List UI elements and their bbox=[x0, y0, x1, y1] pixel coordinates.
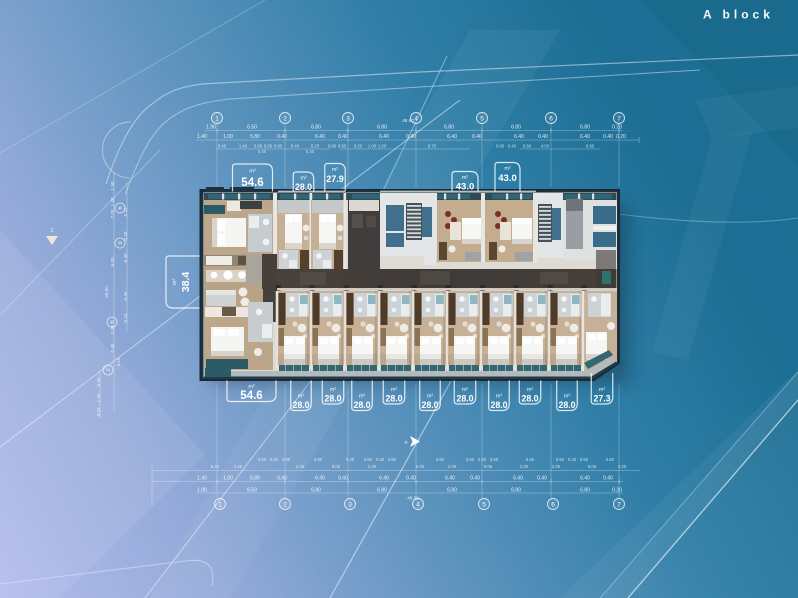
svg-text:6.80: 6.80 bbox=[311, 488, 321, 494]
svg-text:27.9: 27.9 bbox=[326, 174, 344, 184]
svg-text:0.40: 0.40 bbox=[338, 476, 348, 482]
svg-text:m²: m² bbox=[172, 279, 178, 285]
svg-text:1.40: 1.40 bbox=[197, 134, 207, 140]
svg-text:0.40: 0.40 bbox=[538, 134, 548, 140]
svg-text:6.40: 6.40 bbox=[514, 134, 524, 140]
svg-text:8.40: 8.40 bbox=[291, 144, 300, 149]
svg-text:6.80: 6.80 bbox=[311, 125, 321, 131]
svg-text:0.60: 0.60 bbox=[364, 457, 373, 462]
svg-text:6.40: 6.40 bbox=[447, 134, 457, 140]
svg-text:0.80: 0.80 bbox=[282, 457, 291, 462]
svg-text:54.6: 54.6 bbox=[241, 177, 263, 189]
svg-text:2.20: 2.20 bbox=[520, 464, 529, 469]
svg-text:0.80: 0.80 bbox=[274, 144, 283, 149]
svg-text:0.60: 0.60 bbox=[314, 457, 323, 462]
svg-text:54.6: 54.6 bbox=[240, 390, 262, 402]
svg-text:0.20: 0.20 bbox=[616, 134, 626, 140]
svg-text:4: 4 bbox=[414, 115, 418, 122]
svg-text:2.05: 2.05 bbox=[296, 464, 305, 469]
svg-text:20.60: 20.60 bbox=[104, 286, 109, 298]
svg-text:6.80: 6.80 bbox=[444, 125, 454, 131]
svg-text:m²: m² bbox=[427, 394, 433, 400]
svg-text:28.0: 28.0 bbox=[490, 400, 507, 410]
svg-text:1.90: 1.90 bbox=[110, 181, 115, 190]
svg-text:4.10: 4.10 bbox=[116, 357, 121, 366]
svg-text:m²: m² bbox=[527, 387, 533, 393]
svg-text:8.40: 8.40 bbox=[218, 144, 227, 149]
svg-text:6.40: 6.40 bbox=[513, 476, 523, 482]
svg-text:8.20: 8.20 bbox=[311, 144, 320, 149]
svg-text:m²: m² bbox=[298, 394, 304, 400]
svg-text:1.00: 1.00 bbox=[368, 144, 377, 149]
svg-text:4: 4 bbox=[416, 501, 420, 508]
svg-text:0.40: 0.40 bbox=[376, 457, 385, 462]
svg-text:6.80: 6.80 bbox=[447, 488, 457, 494]
svg-text:1.90: 1.90 bbox=[197, 488, 207, 494]
svg-text:1.00: 1.00 bbox=[223, 476, 233, 482]
svg-text:1.00: 1.00 bbox=[223, 134, 233, 140]
svg-text:28.0: 28.0 bbox=[295, 182, 312, 192]
svg-text:m²: m² bbox=[564, 394, 570, 400]
svg-text:1.00: 1.00 bbox=[96, 393, 101, 402]
svg-text:6.80: 6.80 bbox=[377, 125, 387, 131]
svg-text:2: 2 bbox=[51, 228, 54, 234]
svg-text:6.80: 6.80 bbox=[511, 125, 521, 131]
svg-text:1.40: 1.40 bbox=[110, 197, 115, 206]
svg-text:28.0: 28.0 bbox=[521, 394, 538, 404]
svg-text:8.05: 8.05 bbox=[332, 464, 341, 469]
svg-text:28.0: 28.0 bbox=[421, 400, 438, 410]
svg-text:43.0: 43.0 bbox=[456, 182, 475, 193]
svg-text:m²: m² bbox=[300, 176, 306, 182]
svg-text:m²: m² bbox=[249, 169, 255, 175]
svg-text:m²: m² bbox=[391, 387, 397, 393]
svg-text:1.40: 1.40 bbox=[234, 464, 243, 469]
svg-text:1: 1 bbox=[218, 501, 222, 508]
svg-text:0.40: 0.40 bbox=[338, 134, 348, 140]
svg-text:7: 7 bbox=[617, 501, 621, 508]
svg-text:n: n bbox=[404, 440, 407, 446]
svg-text:2.20: 2.20 bbox=[368, 464, 377, 469]
svg-text:5.80: 5.80 bbox=[250, 476, 260, 482]
svg-text:6.40: 6.40 bbox=[580, 476, 590, 482]
svg-text:0.40: 0.40 bbox=[603, 476, 613, 482]
svg-text:6: 6 bbox=[549, 115, 553, 122]
svg-text:0.40: 0.40 bbox=[508, 144, 517, 149]
svg-text:m²: m² bbox=[359, 394, 365, 400]
svg-text:0.20: 0.20 bbox=[612, 488, 622, 494]
svg-text:5.40: 5.40 bbox=[96, 377, 101, 386]
svg-text:1.40: 1.40 bbox=[197, 476, 207, 482]
svg-text:3: 3 bbox=[348, 501, 352, 508]
svg-text:5.80: 5.80 bbox=[250, 134, 260, 140]
svg-text:0.40: 0.40 bbox=[277, 134, 287, 140]
svg-text:7.00: 7.00 bbox=[110, 209, 115, 218]
svg-text:0.60: 0.60 bbox=[490, 457, 499, 462]
svg-text:9.70: 9.70 bbox=[428, 144, 437, 149]
svg-text:6.80: 6.80 bbox=[586, 144, 595, 149]
svg-text:43.0: 43.0 bbox=[498, 173, 517, 184]
svg-text:0.40: 0.40 bbox=[110, 343, 115, 352]
svg-text:0.40: 0.40 bbox=[406, 476, 416, 482]
svg-text:0.40: 0.40 bbox=[603, 134, 613, 140]
svg-text:0.40: 0.40 bbox=[258, 149, 267, 154]
svg-text:8.05: 8.05 bbox=[588, 464, 597, 469]
svg-text:1.00: 1.00 bbox=[378, 144, 387, 149]
svg-text:0.45: 0.45 bbox=[123, 291, 128, 300]
svg-text:6.00: 6.00 bbox=[110, 257, 115, 266]
svg-text:3: 3 bbox=[346, 115, 350, 122]
svg-text:6.40: 6.40 bbox=[123, 253, 128, 262]
svg-text:0.80: 0.80 bbox=[496, 144, 505, 149]
svg-text:m²: m² bbox=[332, 167, 338, 173]
svg-text:A block: A block bbox=[703, 8, 774, 22]
svg-text:0.60: 0.60 bbox=[258, 457, 267, 462]
svg-text:0.80: 0.80 bbox=[523, 144, 532, 149]
svg-text:6.80: 6.80 bbox=[580, 488, 590, 494]
svg-text:0.60: 0.60 bbox=[526, 457, 535, 462]
svg-text:6.40: 6.40 bbox=[379, 476, 389, 482]
svg-text:0.60: 0.60 bbox=[388, 457, 397, 462]
svg-text:m²: m² bbox=[462, 175, 468, 181]
svg-text:2.05: 2.05 bbox=[552, 464, 561, 469]
svg-text:0.20: 0.20 bbox=[612, 125, 622, 131]
svg-text:0.40: 0.40 bbox=[270, 457, 279, 462]
svg-text:6.80: 6.80 bbox=[377, 488, 387, 494]
svg-text:5: 5 bbox=[480, 115, 484, 122]
svg-text:0.60: 0.60 bbox=[556, 457, 565, 462]
svg-text:m²: m² bbox=[504, 166, 510, 172]
svg-text:2: 2 bbox=[283, 115, 287, 122]
svg-text:28.0: 28.0 bbox=[353, 400, 370, 410]
svg-text:0.40: 0.40 bbox=[306, 149, 315, 154]
svg-text:0.40: 0.40 bbox=[406, 134, 416, 140]
svg-text:0.40: 0.40 bbox=[277, 476, 287, 482]
svg-text:6.80: 6.80 bbox=[511, 488, 521, 494]
svg-text:8.20: 8.20 bbox=[354, 144, 363, 149]
svg-text:0.60: 0.60 bbox=[466, 457, 475, 462]
svg-text:0.80: 0.80 bbox=[264, 144, 273, 149]
svg-text:6.40: 6.40 bbox=[580, 134, 590, 140]
svg-text:4.00: 4.00 bbox=[541, 144, 550, 149]
svg-text:6.50: 6.50 bbox=[247, 125, 257, 131]
svg-text:0.40: 0.40 bbox=[568, 457, 577, 462]
svg-text:0.40: 0.40 bbox=[123, 231, 128, 240]
svg-text:6.50: 6.50 bbox=[247, 488, 257, 494]
svg-text:0.80: 0.80 bbox=[254, 144, 263, 149]
svg-text:8.05: 8.05 bbox=[484, 464, 493, 469]
svg-text:1.40: 1.40 bbox=[239, 144, 248, 149]
svg-text:28.0: 28.0 bbox=[385, 394, 402, 404]
svg-text:m²: m² bbox=[462, 387, 468, 393]
svg-text:0.60: 0.60 bbox=[580, 457, 589, 462]
svg-text:6.40: 6.40 bbox=[445, 476, 455, 482]
svg-text:6.40: 6.40 bbox=[315, 476, 325, 482]
svg-text:5.00: 5.00 bbox=[416, 464, 425, 469]
svg-text:0.60: 0.60 bbox=[606, 457, 615, 462]
svg-text:0.40: 0.40 bbox=[346, 457, 355, 462]
svg-text:m²: m² bbox=[330, 387, 336, 393]
svg-text:6.40: 6.40 bbox=[379, 134, 389, 140]
svg-text:0.40: 0.40 bbox=[537, 476, 547, 482]
svg-text:1: 1 bbox=[215, 115, 219, 122]
svg-text:0.40: 0.40 bbox=[470, 476, 480, 482]
svg-text:28.0: 28.0 bbox=[324, 394, 341, 404]
svg-text:0.80: 0.80 bbox=[338, 144, 347, 149]
svg-text:8.40: 8.40 bbox=[211, 464, 220, 469]
svg-text:28.0: 28.0 bbox=[292, 400, 309, 410]
svg-text:6.40: 6.40 bbox=[315, 134, 325, 140]
svg-text:28.0: 28.0 bbox=[456, 394, 473, 404]
svg-text:m²: m² bbox=[599, 387, 605, 393]
svg-text:4.10: 4.10 bbox=[96, 407, 101, 416]
svg-text:1.90: 1.90 bbox=[206, 125, 216, 131]
svg-text:2: 2 bbox=[283, 501, 287, 508]
svg-text:27.3: 27.3 bbox=[593, 394, 610, 404]
svg-text:6.80: 6.80 bbox=[580, 125, 590, 131]
svg-text:0.80: 0.80 bbox=[328, 144, 337, 149]
svg-text:48.60: 48.60 bbox=[402, 118, 414, 123]
svg-text:38.4: 38.4 bbox=[180, 272, 192, 293]
svg-text:28.0: 28.0 bbox=[558, 400, 575, 410]
svg-text:0.60: 0.60 bbox=[436, 457, 445, 462]
svg-text:5: 5 bbox=[482, 501, 486, 508]
svg-text:5.10: 5.10 bbox=[123, 313, 128, 322]
svg-text:0.40: 0.40 bbox=[472, 134, 482, 140]
svg-text:2.05: 2.05 bbox=[448, 464, 457, 469]
svg-text:6: 6 bbox=[551, 501, 555, 508]
svg-text:7: 7 bbox=[617, 115, 621, 122]
svg-text:m²: m² bbox=[496, 394, 502, 400]
